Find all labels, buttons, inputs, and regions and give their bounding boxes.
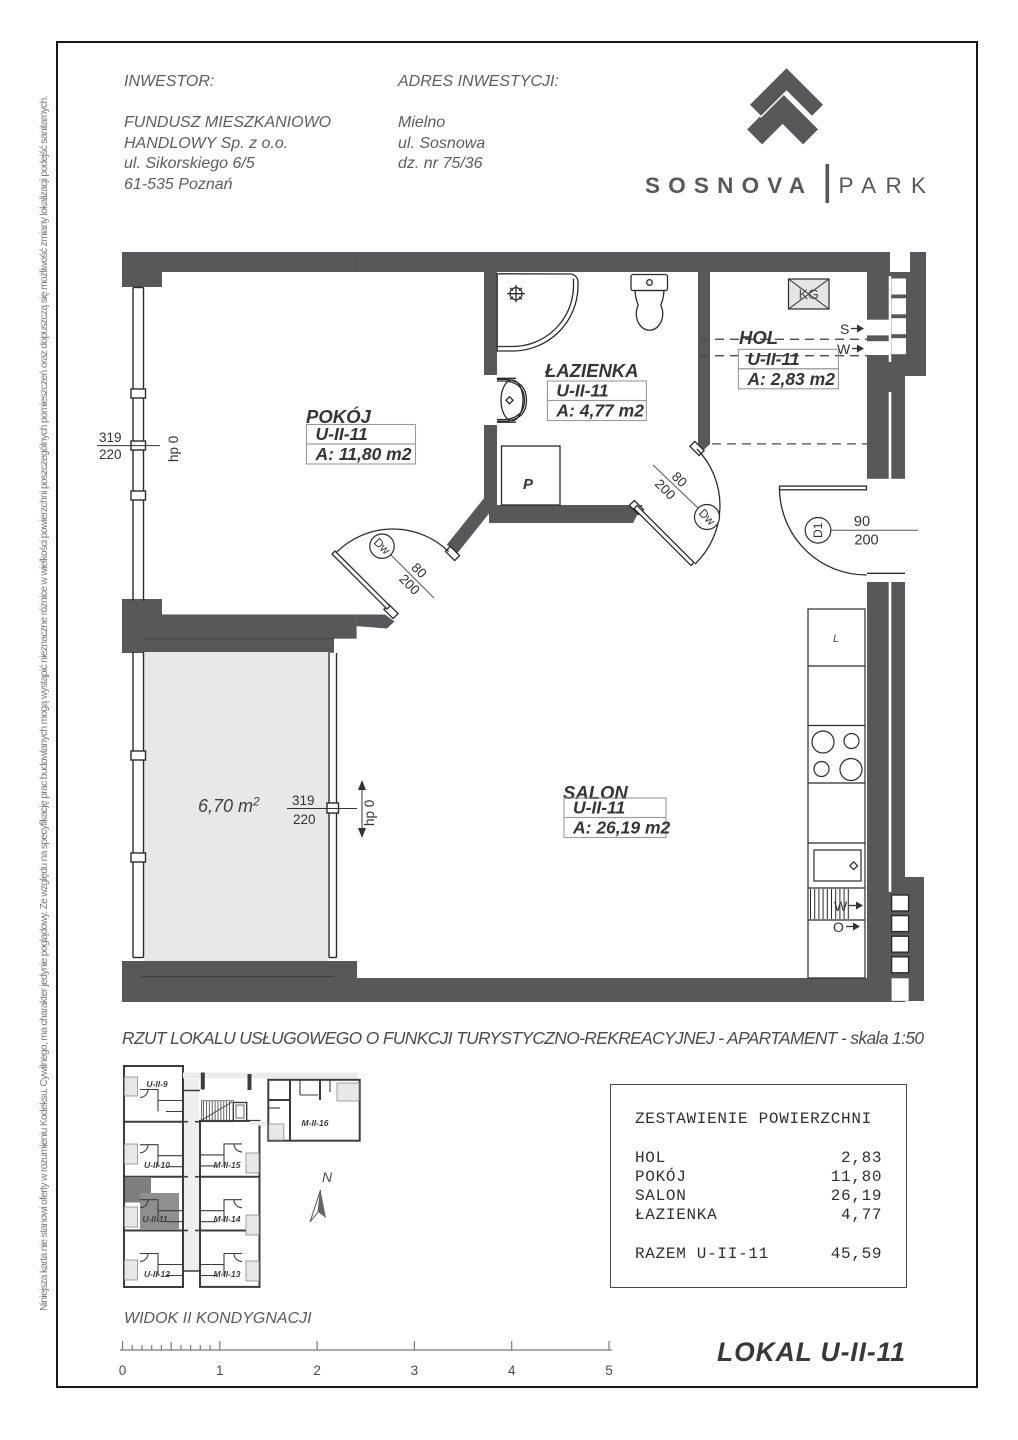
svg-text:4: 4: [508, 1363, 516, 1378]
svg-text:M-II-13: M-II-13: [214, 1269, 241, 1279]
svg-text:M-II-15: M-II-15: [214, 1160, 241, 1170]
svg-text:2: 2: [313, 1363, 321, 1378]
svg-text:A: 11,80 m2: A: 11,80 m2: [315, 444, 412, 464]
svg-text:P: P: [523, 476, 534, 493]
svg-text:O: O: [833, 919, 844, 935]
svg-text:1: 1: [216, 1363, 224, 1378]
svg-text:L: L: [833, 633, 839, 645]
svg-text:N: N: [322, 1169, 333, 1185]
svg-text:200: 200: [854, 533, 878, 549]
svg-text:3: 3: [411, 1363, 419, 1378]
svg-text:U-II-10: U-II-10: [144, 1160, 170, 1170]
svg-text:W: W: [834, 898, 848, 914]
svg-text:319: 319: [292, 793, 315, 808]
svg-text:D1: D1: [811, 522, 825, 538]
svg-text:U-II-12: U-II-12: [144, 1269, 170, 1279]
svg-text:220: 220: [99, 447, 122, 462]
svg-text:KG: KG: [799, 286, 819, 302]
svg-text:M-II-14: M-II-14: [214, 1214, 241, 1224]
svg-text:U-II-9: U-II-9: [146, 1079, 168, 1089]
svg-text:A: 4,77 m2: A: 4,77 m2: [555, 401, 644, 421]
svg-text:W: W: [837, 341, 851, 357]
svg-text:A: 2,83 m2: A: 2,83 m2: [746, 369, 835, 389]
svg-text:hp 0: hp 0: [362, 800, 377, 826]
svg-text:HOL: HOL: [739, 327, 778, 348]
svg-text:U-II-11: U-II-11: [316, 424, 368, 444]
svg-text:U-II-11: U-II-11: [142, 1214, 168, 1224]
svg-text:U-II-11: U-II-11: [556, 381, 608, 401]
svg-text:90: 90: [854, 514, 870, 530]
svg-text:hp 0: hp 0: [166, 436, 181, 462]
svg-text:U-II-11: U-II-11: [573, 798, 625, 818]
svg-text:A: 26,19 m2: A: 26,19 m2: [572, 818, 671, 838]
svg-text:S: S: [840, 321, 849, 337]
svg-text:U-II-11: U-II-11: [747, 349, 799, 369]
svg-text:PARK: PARK: [839, 173, 936, 198]
svg-text:220: 220: [293, 812, 316, 827]
svg-text:M-II-16: M-II-16: [302, 1118, 329, 1128]
svg-text:ŁAZIENKA: ŁAZIENKA: [544, 360, 639, 381]
svg-text:6,70 m2: 6,70 m2: [198, 795, 260, 817]
svg-text:SOSNOVA: SOSNOVA: [645, 173, 813, 198]
svg-text:0: 0: [119, 1363, 127, 1378]
svg-text:319: 319: [99, 430, 122, 445]
svg-text:5: 5: [605, 1363, 613, 1378]
